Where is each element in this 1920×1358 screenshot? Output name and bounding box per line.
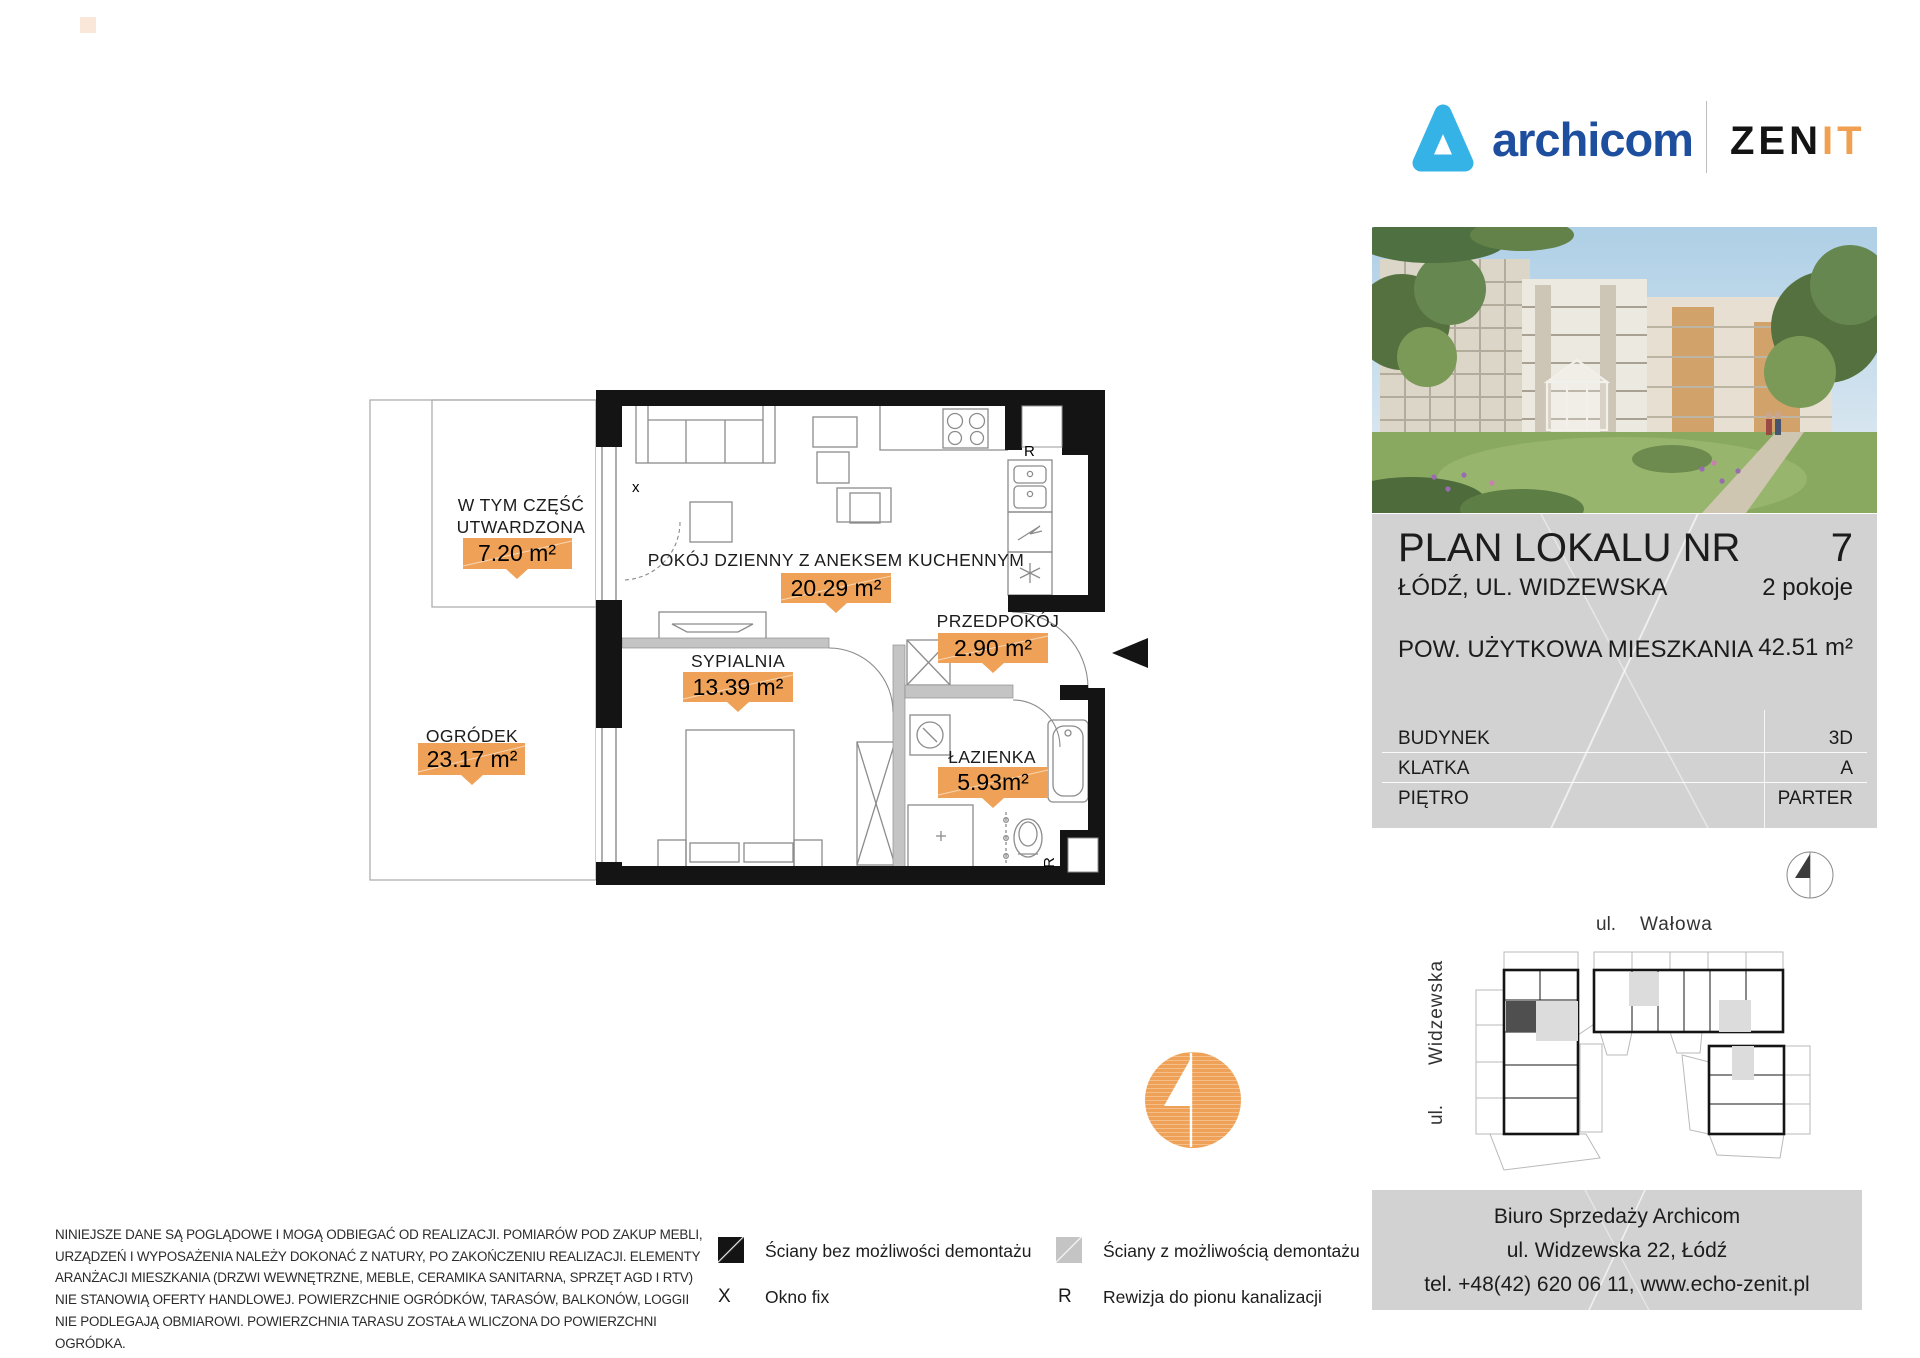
site-staircase-shade <box>1732 1046 1754 1080</box>
fix-window-marker: x <box>632 479 640 496</box>
spec-value: PARTER <box>1778 788 1853 810</box>
disclaimer-text: NINIEJSZE DANE SĄ POGLĄDOWE I MOGĄ ODBIE… <box>55 1224 713 1354</box>
spec-label: PIĘTRO <box>1398 788 1469 810</box>
stove <box>943 409 988 448</box>
shower <box>908 805 973 868</box>
archicom-logo-icon <box>1404 100 1482 178</box>
entrance-arrow-icon <box>1112 638 1148 668</box>
spec-label: BUDYNEK <box>1398 728 1490 750</box>
bedroom-door-arc <box>829 648 893 712</box>
legend-removable-wall-label: Ściany z możliwością demontażu <box>1103 1241 1360 1262</box>
spec-value: 3D <box>1829 728 1853 750</box>
legend-removable-wall-swatch <box>1056 1237 1082 1263</box>
site-building-left <box>1504 970 1578 1134</box>
spec-label: KLATKA <box>1398 758 1469 780</box>
site-unit-highlight <box>1506 1001 1536 1032</box>
wardrobe-bedroom <box>857 742 895 865</box>
plan-title: PLAN LOKALU NR <box>1398 526 1740 571</box>
svg-text:13.39 m²: 13.39 m² <box>693 674 784 700</box>
area-tag-bath: 5.93m² <box>938 767 1048 808</box>
area-tag-paved: 7.20 m² <box>463 538 572 579</box>
area-tag-garden: 23.17 m² <box>418 743 525 785</box>
building-photo <box>1372 227 1877 513</box>
spec-separator <box>1382 752 1867 753</box>
archicom-logo-text: archicom <box>1492 112 1693 167</box>
floor-plan: x R R W TYM CZĘŚĆ UTWARDZONA OGRÓDEK POK… <box>340 380 1170 910</box>
svg-text:23.17 m²: 23.17 m² <box>427 746 518 772</box>
usable-area-value: 42.51 m² <box>1758 634 1853 662</box>
spec-separator <box>1382 782 1867 783</box>
garden-label: OGRÓDEK <box>426 725 518 746</box>
zenit-logo-black: ZEN <box>1730 119 1822 163</box>
bathtub <box>1048 720 1088 802</box>
garden-outline <box>370 400 596 880</box>
towel-radiator <box>1004 812 1009 868</box>
area-tags: 7.20 m² 23.17 m² 20.29 m² 13.39 m² <box>418 538 1048 808</box>
legend-fix-window-symbol: X <box>718 1286 731 1308</box>
zenit-logo: ZENIT <box>1730 119 1866 164</box>
dining-set <box>813 417 891 523</box>
living-label: POKÓJ DZIENNY Z ANEKSEM KUCHENNYM <box>648 549 1025 570</box>
legend-fix-window-label: Okno fix <box>765 1287 829 1308</box>
legend-revision-symbol: R <box>1058 1286 1072 1308</box>
area-tag-bedroom: 13.39 m² <box>683 672 793 712</box>
site-staircase-shade <box>1719 1000 1751 1032</box>
washing-machine <box>910 715 950 755</box>
site-building-middle <box>1594 970 1783 1032</box>
paved-label-1: W TYM CZĘŚĆ <box>458 494 585 515</box>
unit-info-panel: PLAN LOKALU NR 7 ŁÓDŹ, UL. WIDZEWSKA 2 p… <box>1372 514 1877 828</box>
spec-row-staircase: KLATKA A <box>1372 754 1877 782</box>
svg-text:7.20 m²: 7.20 m² <box>478 540 556 566</box>
site-staircase-shade <box>1629 972 1659 1006</box>
legend-solid-wall-label: Ściany bez możliwości demontażu <box>765 1241 1032 1262</box>
street-widzewska-prefix: ul. <box>1426 1105 1447 1125</box>
legend-solid-wall-swatch <box>718 1237 744 1263</box>
spec-value: A <box>1840 758 1853 780</box>
revision-marker-kitchen: R <box>1024 443 1035 460</box>
paved-label-2: UTWARDZONA <box>457 517 586 537</box>
logo-divider <box>1706 101 1707 173</box>
unit-number: 7 <box>1831 526 1853 571</box>
bedroom-label: SYPIALNIA <box>691 651 785 671</box>
svg-text:5.93m²: 5.93m² <box>957 769 1029 795</box>
sales-office-block: Biuro Sprzedaży Archicom ul. Widzewska 2… <box>1372 1190 1862 1310</box>
tv-shelf <box>659 612 766 641</box>
area-tag-hall: 2.90 m² <box>938 633 1048 673</box>
north-compass-needle <box>1145 1052 1241 1148</box>
hall-label: PRZEDPOKÓJ <box>937 610 1060 631</box>
street-widzewska: Widzewska <box>1426 960 1447 1065</box>
bath-label: ŁAZIENKA <box>948 747 1036 767</box>
plan-sheet: archicom ZENIT <box>0 0 1920 1358</box>
dishwasher <box>1008 512 1052 552</box>
unit-rooms-count: 2 pokoje <box>1762 574 1853 602</box>
svg-text:20.29 m²: 20.29 m² <box>791 575 882 601</box>
north-compass-orange <box>1145 1052 1241 1148</box>
toilet <box>1014 819 1042 857</box>
legend-revision-label: Rewizja do pionu kanalizacji <box>1103 1287 1322 1308</box>
sales-office-address: ul. Widzewska 22, Łódź <box>1372 1234 1862 1268</box>
sales-office-phone-web: tel. +48(42) 620 06 11, www.echo-zenit.p… <box>1372 1268 1862 1302</box>
site-buildings <box>1504 970 1784 1134</box>
site-plan: ul. Wałowa Widzewska ul. <box>1372 840 1920 1190</box>
shaft <box>1068 838 1098 872</box>
sales-office-name: Biuro Sprzedaży Archicom <box>1372 1200 1862 1234</box>
spec-row-building: BUDYNEK 3D <box>1372 724 1877 752</box>
sofa <box>636 405 775 463</box>
kitchen-sink <box>1008 460 1052 512</box>
side-table <box>690 502 732 542</box>
usable-area-label: POW. UŻYTKOWA MIESZKANIA <box>1398 636 1753 664</box>
niche <box>1022 406 1062 447</box>
spec-row-floor: PIĘTRO PARTER <box>1372 784 1877 812</box>
street-walowa: Wałowa <box>1640 914 1713 935</box>
street-walowa-prefix: ul. <box>1596 914 1616 935</box>
site-compass-icon <box>1787 852 1833 898</box>
corner-mark <box>80 17 96 33</box>
unit-address: ŁÓDŹ, UL. WIDZEWSKA <box>1398 574 1667 602</box>
revision-marker-bath: R <box>1041 857 1058 868</box>
bed <box>658 730 822 868</box>
kitchen-counter <box>880 406 1008 450</box>
svg-text:2.90 m²: 2.90 m² <box>954 635 1032 661</box>
site-unit-adjacent-shade <box>1536 1001 1578 1041</box>
room-labels: W TYM CZĘŚĆ UTWARDZONA OGRÓDEK POKÓJ DZI… <box>426 494 1059 767</box>
area-tag-living: 20.29 m² <box>781 573 891 613</box>
zenit-logo-orange: IT <box>1822 119 1866 163</box>
